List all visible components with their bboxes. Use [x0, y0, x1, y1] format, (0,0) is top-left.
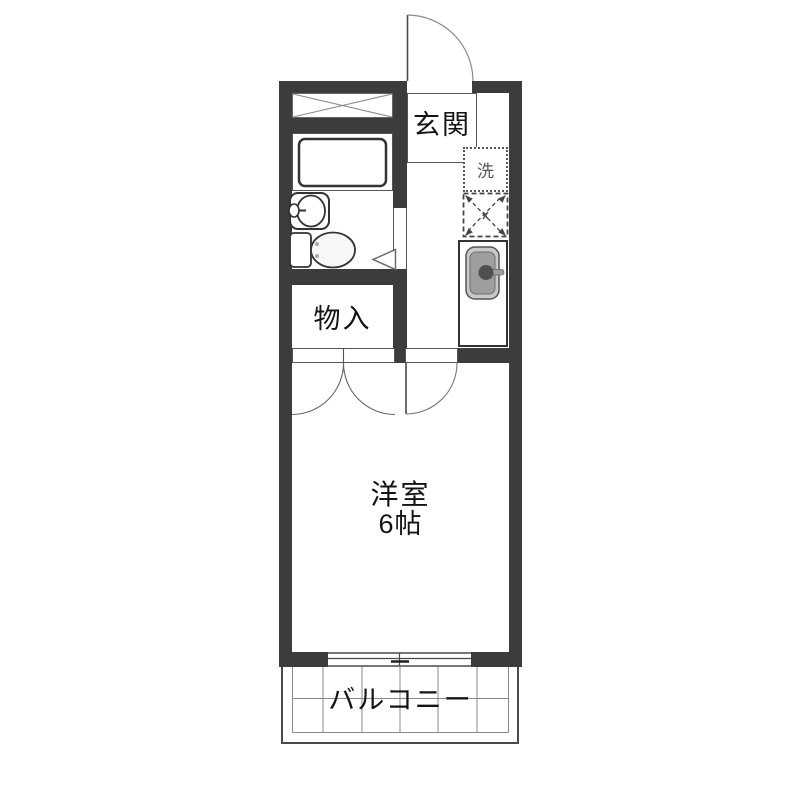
wall-right	[509, 81, 522, 667]
wall-top-left	[279, 81, 407, 93]
storage-niche	[292, 93, 393, 118]
wall-bottom-left	[279, 652, 328, 667]
floor-plan: 玄関 洗 物入 洋室 6帖 バルコニー	[0, 0, 800, 800]
closet-label: 物入	[292, 299, 393, 333]
entrance-label: 玄関	[407, 105, 477, 139]
entrance-door	[408, 15, 474, 81]
closet-door-frame	[292, 348, 395, 363]
wall-bath-bottom	[292, 269, 407, 285]
balcony-label: バルコニー	[292, 681, 509, 713]
wash-basin	[289, 193, 329, 229]
room-door-frame	[405, 348, 458, 363]
wall-bottom-right	[471, 652, 522, 667]
bathroom-door	[373, 208, 407, 270]
fridge-space	[464, 194, 508, 237]
room-size-label: 6帖	[292, 506, 509, 537]
kitchen-counter	[458, 240, 508, 347]
toilet	[290, 233, 355, 268]
wall-bath-niche-band	[292, 118, 407, 133]
wall-bath-right-upper	[393, 93, 407, 208]
bathtub-area	[292, 133, 393, 191]
window-sliding	[328, 652, 471, 667]
wall-left	[279, 81, 292, 667]
washer-label: 洗	[463, 148, 508, 190]
wall-mid-right	[458, 348, 522, 363]
room-door	[406, 363, 457, 414]
